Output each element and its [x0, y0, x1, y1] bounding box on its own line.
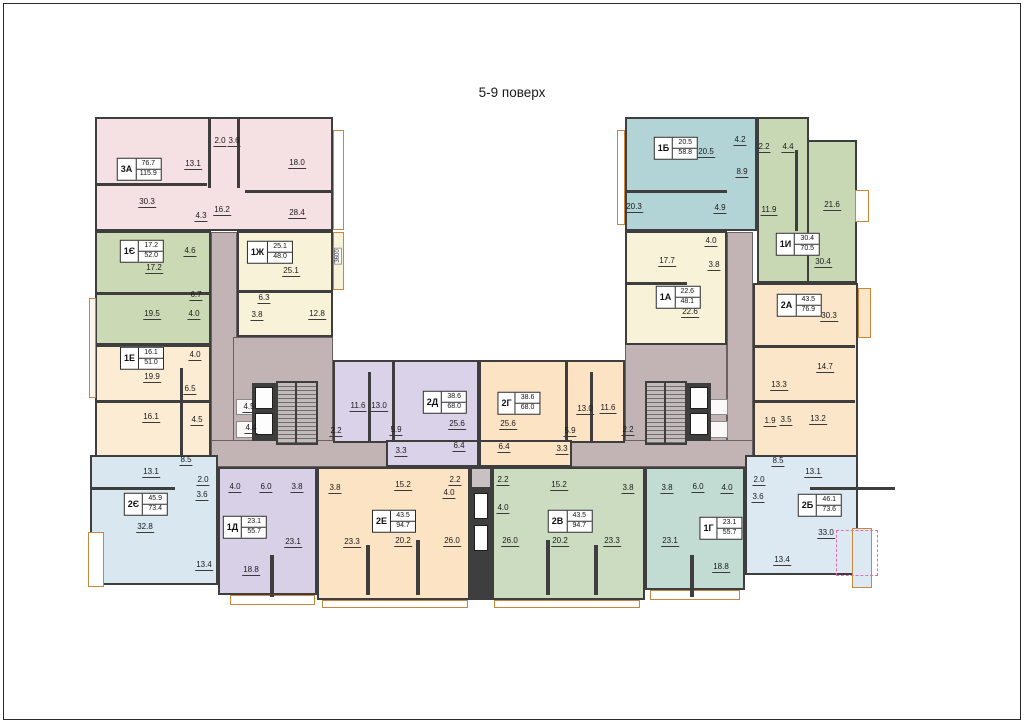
stairwell-right [645, 381, 687, 445]
room-area-label: 17.7 [658, 257, 676, 267]
corridor-right-vertical [727, 232, 753, 444]
apartment-label-6: 1Д23.155.7 [223, 516, 267, 539]
wall-segment [690, 555, 694, 597]
wall-segment [755, 400, 855, 403]
room-area-label: 4.0 [442, 489, 455, 499]
apartment-unit-code: 1Д [224, 517, 242, 538]
wall-segment [795, 150, 798, 231]
apartment-living-area: 43.5 [391, 511, 415, 522]
apartment-living-area: 76.7 [136, 159, 160, 170]
room-area-label: 2.0 [196, 476, 209, 486]
room-area-label: 3.5 [779, 416, 792, 426]
wall-segment [627, 282, 687, 285]
elevator-shaft-right [687, 383, 711, 441]
room-area-label: 4.3 [194, 212, 207, 222]
apartment-label-7: 2Е43.594.7 [372, 510, 416, 533]
room-area-label: 6.7 [189, 291, 202, 301]
apartment-total-area: 68.0 [516, 404, 540, 414]
room-area-label: 2.2 [496, 476, 509, 486]
apartment-unit-code: 2Г [498, 393, 515, 414]
room-area-label: 8.5 [771, 457, 784, 467]
room-area-label: 20.2 [394, 537, 412, 547]
room-area-label: 3.8 [660, 484, 673, 494]
room-area-label: 2.2 [621, 426, 634, 436]
room-area-label: 4.6 [183, 247, 196, 257]
dimension-label: 3600 [334, 247, 342, 264]
room-area-label: 13.4 [195, 561, 213, 571]
room-area-label: 3.8 [290, 483, 303, 493]
balcony [322, 600, 468, 608]
room-area-label: 18.8 [712, 563, 730, 573]
room-area-label: 4.0 [228, 483, 241, 493]
room-area-label: 4.9 [713, 204, 726, 214]
apartment-areas: 30.470.5 [795, 234, 819, 255]
room-area-label: 1.9 [763, 417, 776, 427]
apartment-label-3: 1Ж25.148.0 [247, 241, 293, 264]
balcony [858, 288, 871, 338]
room-area-label: 11.6 [600, 404, 617, 414]
apartment-label-1: 3А76.7115.9 [117, 158, 162, 181]
room-area-label: 23.1 [661, 537, 679, 547]
wall-segment [97, 183, 207, 186]
room-area-label: 4.5 [190, 416, 203, 426]
future-partition [836, 530, 878, 576]
apartment-areas: 23.155.7 [718, 518, 742, 539]
room-area-label: 15.2 [550, 481, 568, 491]
apartment-living-area: 16.1 [139, 348, 163, 359]
room-area-label: 6.4 [452, 442, 465, 452]
room-area-label: 6.4 [497, 443, 510, 453]
apartment-living-area: 20.5 [673, 138, 697, 149]
apartment-unit-code: 2В [549, 511, 568, 532]
apartment-areas: 43.594.7 [391, 511, 415, 532]
room-area-label: 32.8 [136, 523, 154, 533]
balcony [650, 590, 740, 600]
room-area-label: 4.4 [781, 143, 794, 153]
room-area-label: 6.0 [259, 483, 272, 493]
room-area-label: 8.9 [735, 168, 748, 178]
apartment-living-area: 46.1 [817, 495, 841, 506]
elevator-cab [255, 387, 273, 409]
apartment-areas: 38.668.0 [516, 393, 540, 414]
apartment-label-10: 2В43.594.7 [548, 510, 593, 533]
room-area-label: 26.0 [443, 537, 461, 547]
apartment-living-area: 43.5 [796, 295, 820, 306]
apartment-label-11: 1Г23.155.7 [699, 517, 742, 540]
apartment-living-area: 45.9 [143, 494, 167, 505]
wall-segment [245, 190, 333, 193]
apartment-total-area: 76.9 [796, 306, 820, 316]
elevator-shaft-center [471, 487, 491, 599]
wall-segment [627, 190, 727, 193]
apartment-unit-code: 2А [778, 295, 797, 316]
room-area-label: 28.4 [288, 209, 306, 219]
elevator-cab [690, 413, 708, 435]
apartment-living-area: 25.1 [268, 242, 292, 253]
room-area-label: 20.5 [697, 148, 715, 158]
wall-segment [664, 381, 666, 445]
room-area-label: 30.4 [814, 258, 832, 268]
elevator-cab [690, 387, 708, 409]
room-area-label: 3.8 [621, 484, 634, 494]
room-area-label: 20.2 [551, 537, 569, 547]
apartment-areas: 25.148.0 [268, 242, 292, 263]
room-area-label: 15.2 [394, 481, 412, 491]
room-area-label: 2.0 [752, 476, 765, 486]
apartment-areas: 38.668.0 [442, 392, 466, 413]
apartment-label-5: 2Є45.973.4 [124, 493, 168, 516]
room-area-label: 19.9 [143, 373, 161, 383]
elevator-cab [474, 525, 488, 551]
room-area-label: 25.1 [282, 267, 300, 277]
room-area-label: 2.2 [757, 143, 770, 153]
apartment-areas: 22.648.1 [675, 287, 699, 308]
apartment-label-13: 2А43.576.9 [777, 294, 822, 317]
room-area-label: 4.0 [188, 351, 201, 361]
room-area-label: 13.4 [773, 556, 791, 566]
wall-segment [295, 381, 297, 445]
room-area-label: 4.0 [720, 484, 733, 494]
room-area-label: 30.3 [138, 198, 156, 208]
apartment-unit-code: 1Г [700, 518, 717, 539]
apartment-living-area: 23.1 [718, 518, 742, 529]
apartment-areas: 16.151.0 [139, 348, 163, 369]
room-area-label: 8.5 [179, 456, 192, 466]
apartment-total-area: 58.8 [673, 149, 697, 159]
room-area-label: 13.1 [142, 468, 160, 478]
room-area-label: 3.6 [227, 137, 240, 147]
room-area-label: 4.0 [496, 504, 509, 514]
balcony [494, 600, 640, 608]
apartment-label-8: 2Д38.668.0 [423, 391, 467, 414]
room-area-label: 6.5 [183, 385, 196, 395]
apartment-unit-code: 1Б [655, 138, 673, 159]
apartment-label-9: 2Г38.668.0 [497, 392, 540, 415]
apartment-areas: 76.7115.9 [136, 159, 160, 180]
room-area-label: 4.4 [244, 424, 257, 434]
apartment-total-area: 73.4 [143, 505, 167, 515]
balcony [333, 130, 344, 230]
room-area-label: 11.6 [350, 402, 367, 412]
room-area-label: 21.6 [823, 201, 841, 211]
room-area-label: 19.5 [143, 310, 161, 320]
apartment-unit-code: 2Е [373, 511, 391, 532]
apartment-unit-code: 2Д [424, 392, 442, 413]
apartment-areas: 43.594.7 [567, 511, 591, 532]
room-area-label: 25.6 [448, 420, 466, 430]
room-area-label: 12.8 [308, 310, 326, 320]
room-area-label: 6.0 [691, 483, 704, 493]
apartment-total-area: 94.7 [567, 522, 591, 532]
apartment-total-area: 73.6 [817, 506, 841, 516]
apartment-total-area: 68.0 [442, 403, 466, 413]
stairwell-left [276, 381, 318, 445]
apartment-unit-code: 2Б [799, 495, 817, 516]
room-area-label: 4.0 [704, 237, 717, 247]
apartment-living-area: 38.6 [516, 393, 540, 404]
room-area-label: 16.1 [142, 413, 160, 423]
apartment-unit-code: 1Е [121, 348, 139, 369]
room-area-label: 14.7 [816, 363, 834, 373]
apartment-label-16: 1Б20.558.8 [654, 137, 698, 160]
apartment-total-area: 70.5 [795, 245, 819, 255]
apartment-areas: 23.155.7 [242, 517, 266, 538]
room-area-label: 17.2 [145, 264, 163, 274]
room-area-label: 13.2 [809, 415, 827, 425]
apartment-areas: 20.558.8 [673, 138, 697, 159]
room-area-label: 4.5 [242, 403, 255, 413]
apartment-unit-code: 1Є [121, 241, 139, 262]
apartment-label-12: 2Б46.173.6 [798, 494, 842, 517]
room-area-label: 3.3 [394, 447, 407, 457]
apartment-living-area: 17.2 [139, 241, 163, 252]
room-area-label: 3.6 [195, 491, 208, 501]
room-area-label: 22.6 [681, 308, 699, 318]
apartment-areas: 43.576.9 [796, 295, 820, 316]
apartment-living-area: 38.6 [442, 392, 466, 403]
elevator-cab [255, 413, 273, 435]
room-area-label: 3.6 [751, 493, 764, 503]
room-area-label: 13.1 [804, 468, 822, 478]
wall-segment [366, 545, 370, 595]
wall-segment [237, 290, 333, 293]
apartment-total-area: 94.7 [391, 522, 415, 532]
apartment-label-4: 1Е16.151.0 [120, 347, 164, 370]
apartment-label-2: 1Є17.252.0 [120, 240, 164, 263]
wall-segment [594, 545, 598, 595]
room-area-label: 3.8 [328, 484, 341, 494]
room-area-label: 2.2 [448, 476, 461, 486]
apartment-label-15: 1А22.648.1 [656, 286, 701, 309]
floor-plan-page: 5-9 поверх 2.03.613.118.030.34.316.228.4… [0, 0, 1024, 723]
room-area-label: 13.0 [576, 405, 594, 415]
room-area-label: 2.2 [329, 427, 342, 437]
wall-segment [755, 345, 855, 348]
balcony [88, 532, 104, 587]
wall-segment [237, 118, 240, 188]
room-area-label: 11.9 [761, 206, 778, 216]
room-area-label: 6.3 [257, 294, 270, 304]
apartment-label-14: 1И30.470.5 [776, 233, 820, 256]
plan-title: 5-9 поверх [479, 85, 546, 100]
apartment-living-area: 22.6 [675, 287, 699, 298]
apartment-total-area: 48.0 [268, 253, 292, 263]
room-area-label: 3.8 [707, 261, 720, 271]
room-area-label: 30.3 [820, 312, 838, 322]
room-area-label: 18.0 [288, 159, 306, 169]
wall-segment [95, 400, 211, 403]
apartment-areas: 17.252.0 [139, 241, 163, 262]
balcony [855, 190, 869, 222]
apartment-unit-code: 1Ж [248, 242, 268, 263]
balcony [89, 298, 96, 398]
apartment-unit-code: 1И [777, 234, 795, 255]
room-area-label: 20.3 [625, 203, 643, 213]
apartment-total-area: 48.1 [675, 298, 699, 308]
room-area-label: 3.3 [555, 445, 568, 455]
room-area-label: 18.8 [242, 566, 260, 576]
apartment-total-area: 51.0 [139, 359, 163, 369]
apartment-living-area: 23.1 [242, 517, 266, 528]
apartment-areas: 46.173.6 [817, 495, 841, 516]
apartment-total-area: 115.9 [136, 170, 160, 180]
room-area-label: 4.0 [187, 310, 200, 320]
apartment-total-area: 52.0 [139, 252, 163, 262]
wall-segment [270, 555, 274, 597]
room-area-label: 3.8 [250, 311, 263, 321]
room-area-label: 33.0 [817, 529, 835, 539]
room-area-label: 26.0 [501, 537, 519, 547]
room-area-label: 13.1 [184, 160, 202, 170]
room-area-label: 13.3 [770, 381, 788, 391]
room-area-label: 25.6 [499, 420, 517, 430]
wall-segment [208, 118, 211, 188]
room-area-label: 5.9 [389, 426, 402, 436]
apartment-unit-code: 2Є [125, 494, 143, 515]
apartment-living-area: 43.5 [567, 511, 591, 522]
room-area-label: 23.3 [343, 538, 361, 548]
apartment-living-area: 30.4 [795, 234, 819, 245]
apartment-total-area: 55.7 [718, 529, 742, 539]
room-area-label: 4.2 [733, 136, 746, 146]
apartment-unit-code: 3А [118, 159, 137, 180]
wall-segment [810, 487, 895, 490]
room-area-label: 13.0 [370, 402, 388, 412]
room-area-label: 5.9 [563, 427, 576, 437]
balcony [617, 130, 625, 225]
wall-segment [92, 487, 175, 490]
room-area-label: 23.1 [284, 538, 302, 548]
room-area-label: 16.2 [213, 206, 231, 216]
apartment-areas: 45.973.4 [143, 494, 167, 515]
room-area-label: 2.0 [213, 137, 226, 147]
apartment-unit-code: 1А [657, 287, 676, 308]
room-area-label: 23.3 [603, 537, 621, 547]
wall-segment [416, 540, 420, 595]
wall-segment [546, 540, 550, 595]
apartment-total-area: 55.7 [242, 528, 266, 538]
wall-segment [180, 368, 183, 457]
elevator-cab [474, 493, 488, 519]
